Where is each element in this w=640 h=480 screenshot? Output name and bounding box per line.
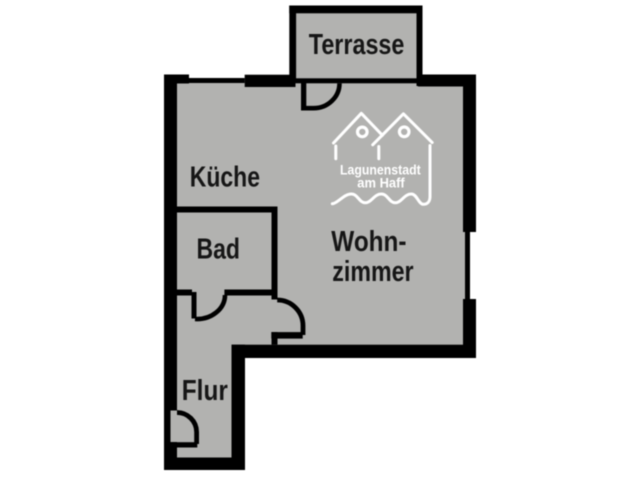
svg-text:Wohn-: Wohn- [331, 226, 406, 258]
svg-text:Bad: Bad [197, 234, 241, 266]
svg-text:zimmer: zimmer [332, 256, 413, 288]
svg-text:Terrasse: Terrasse [309, 29, 405, 61]
svg-text:am Haff: am Haff [357, 175, 405, 190]
svg-text:Küche: Küche [190, 161, 260, 193]
svg-text:Flur: Flur [182, 375, 228, 407]
